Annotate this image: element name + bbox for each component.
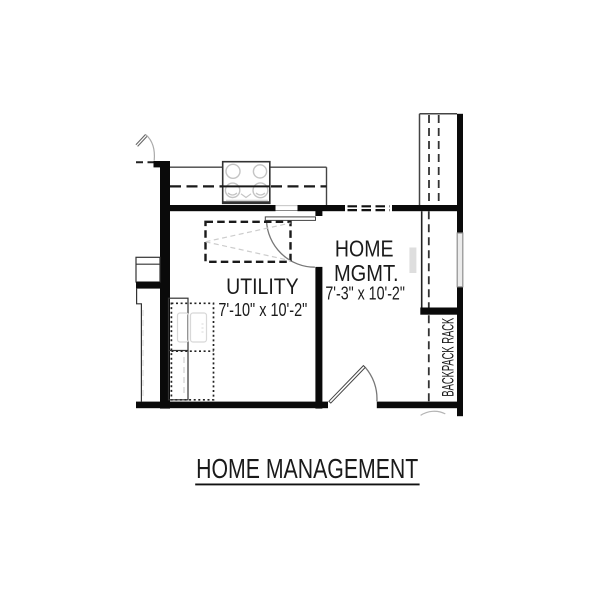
- svg-text:HOME: HOME: [335, 236, 394, 262]
- svg-text:7'-3" x 10'-2": 7'-3" x 10'-2": [325, 284, 405, 304]
- svg-text:MGMT.: MGMT.: [334, 259, 399, 286]
- svg-text:7'-10" x 10'-2": 7'-10" x 10'-2": [218, 300, 307, 320]
- svg-text:BACKPACK RACK: BACKPACK RACK: [439, 318, 457, 397]
- svg-text:HOME MANAGEMENT: HOME MANAGEMENT: [196, 454, 418, 484]
- svg-text:UTILITY: UTILITY: [226, 275, 299, 300]
